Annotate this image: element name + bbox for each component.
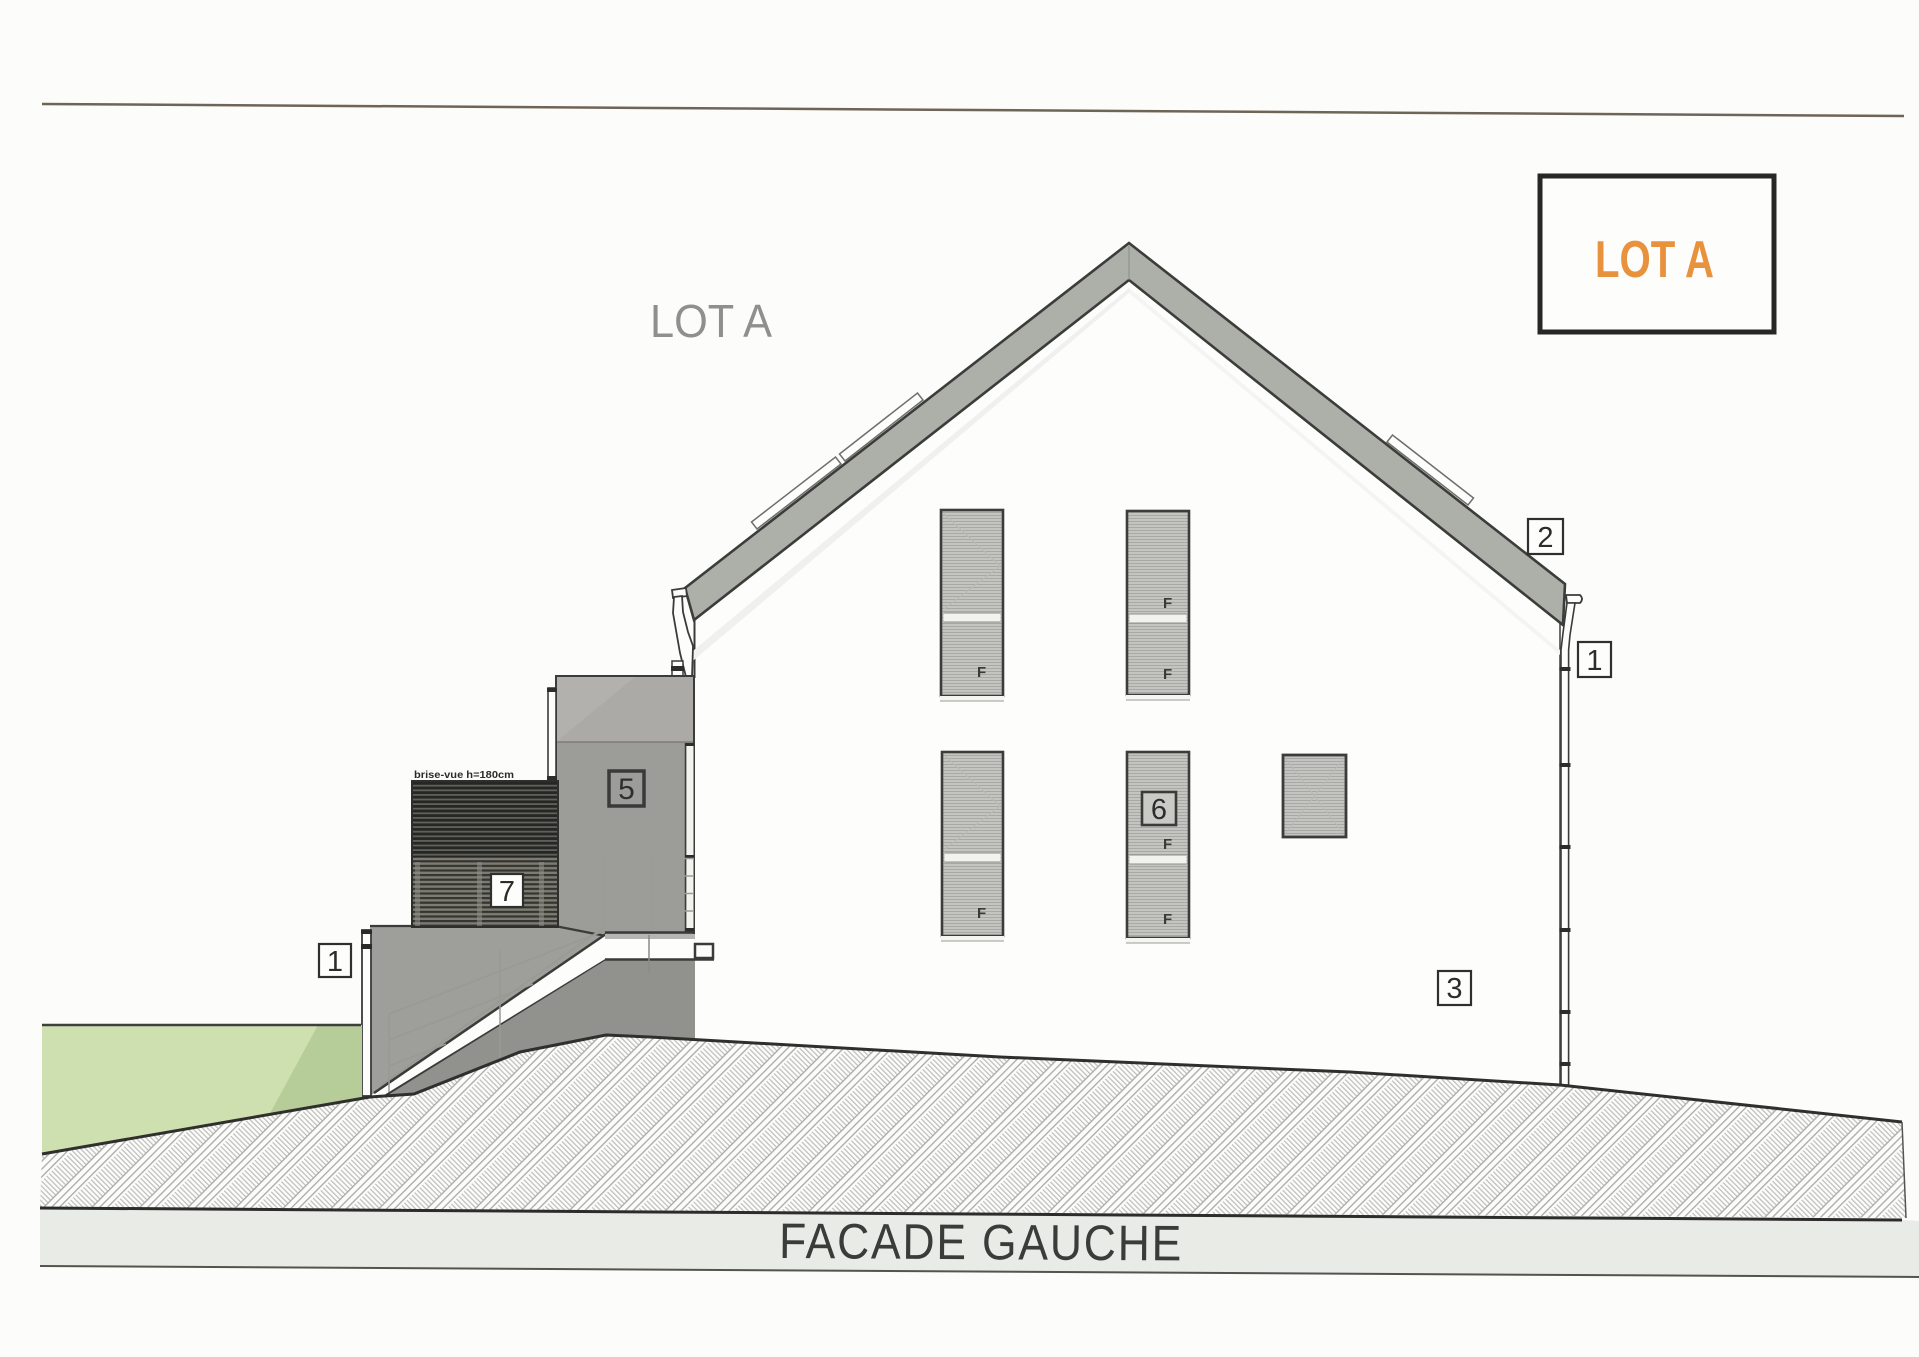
svg-text:3: 3: [1446, 973, 1462, 1005]
svg-text:LOT A: LOT A: [1595, 231, 1714, 289]
svg-text:F: F: [977, 664, 986, 681]
svg-text:7: 7: [499, 876, 515, 908]
svg-text:F: F: [1163, 666, 1172, 683]
svg-text:5: 5: [618, 773, 635, 806]
svg-text:LOT A: LOT A: [650, 295, 772, 347]
svg-text:2: 2: [1537, 522, 1553, 554]
svg-text:F: F: [1163, 595, 1172, 612]
svg-text:brise-vue h=180cm: brise-vue h=180cm: [414, 769, 514, 781]
svg-text:FACADE GAUCHE: FACADE GAUCHE: [779, 1213, 1183, 1271]
svg-text:F: F: [1163, 836, 1172, 853]
svg-text:F: F: [1163, 911, 1172, 928]
svg-text:1: 1: [327, 946, 343, 978]
svg-text:F: F: [977, 905, 986, 922]
svg-text:6: 6: [1151, 794, 1167, 826]
svg-text:1: 1: [1586, 645, 1602, 677]
